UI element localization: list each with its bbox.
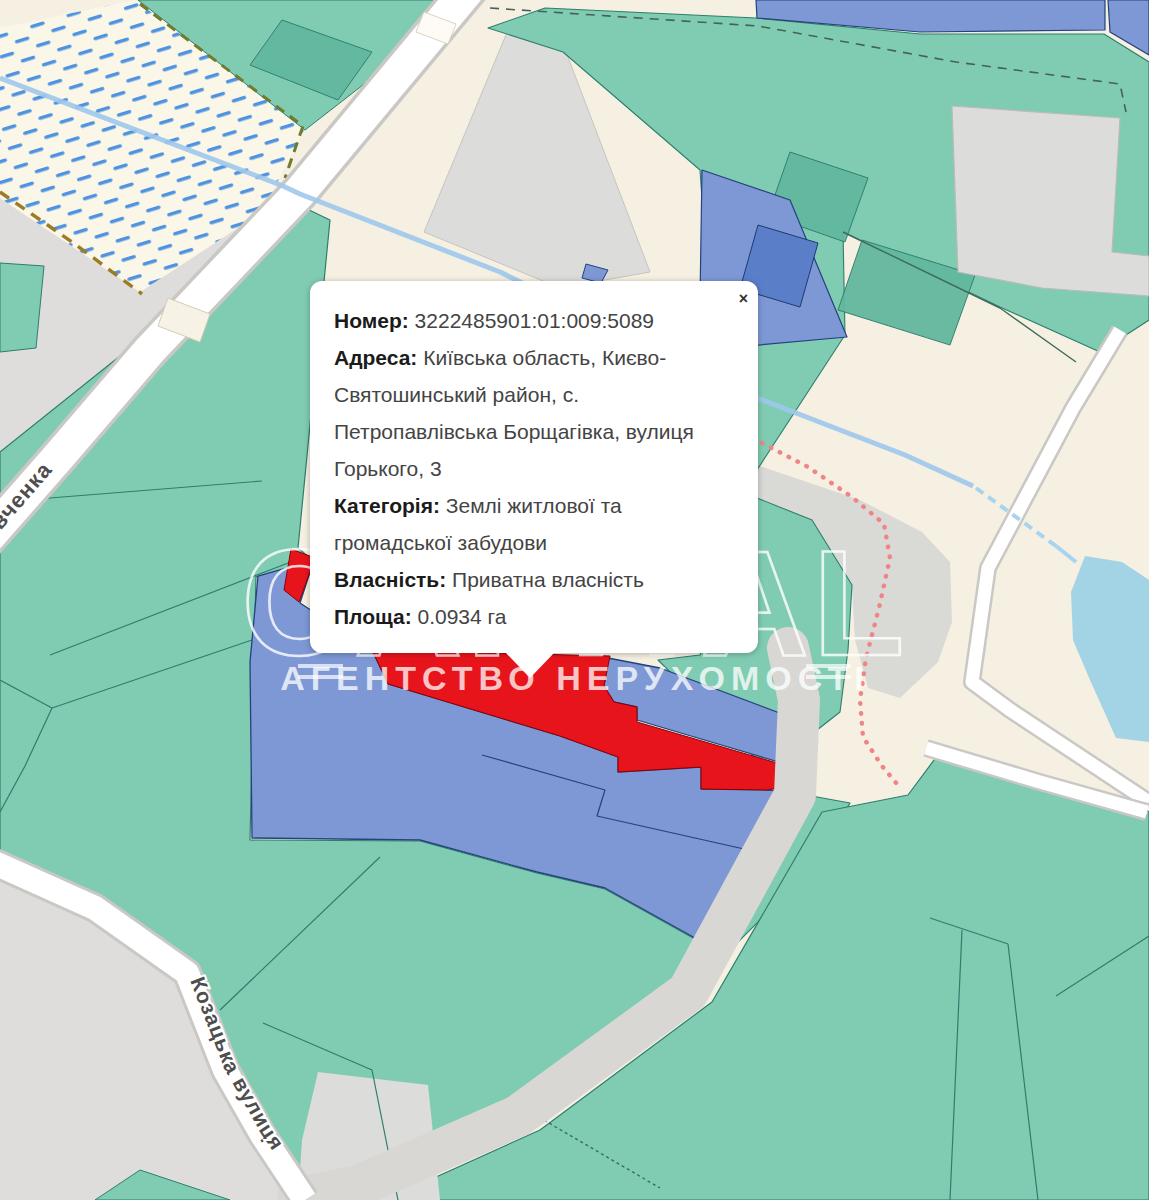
parcel-number-row: Номер: 3222485901:01:009:5089 xyxy=(334,302,734,339)
watermark-subtitle: АГЕНТСТВО НЕРУХОМОСТІ xyxy=(280,659,869,697)
parcel-category-label: Категорія: xyxy=(334,494,440,517)
parcel-number-value: 3222485901:01:009:5089 xyxy=(409,309,654,332)
parcel-info-popup: × Номер: 3222485901:01:009:5089 Адреса: … xyxy=(310,281,758,653)
parcel-address-label: Адреса: xyxy=(334,346,417,369)
parcel-area-row: Площа: 0.0934 га xyxy=(334,598,734,635)
popup-arrow xyxy=(506,653,554,678)
parcel-area-label: Площа: xyxy=(334,605,412,628)
parcel-ownership-row: Власність: Приватна власність xyxy=(334,561,734,598)
parcel-ownership-label: Власність: xyxy=(334,568,446,591)
green-parcel-in-gray[interactable] xyxy=(0,263,44,352)
popup-close-button[interactable]: × xyxy=(739,291,748,307)
parcel-address-row: Адреса: Київська область, Києво-Святошин… xyxy=(334,339,734,487)
parcel-ownership-value: Приватна власність xyxy=(446,568,644,591)
parcel-number-label: Номер: xyxy=(334,309,409,332)
parcel-category-row: Категорія: Землі житлової та громадської… xyxy=(334,487,734,561)
map-viewport[interactable]: THE CAPITAL АГЕНТСТВО НЕРУХОМОСТІ вченка… xyxy=(0,0,1149,1200)
parcel-area-value: 0.0934 га xyxy=(412,605,507,628)
